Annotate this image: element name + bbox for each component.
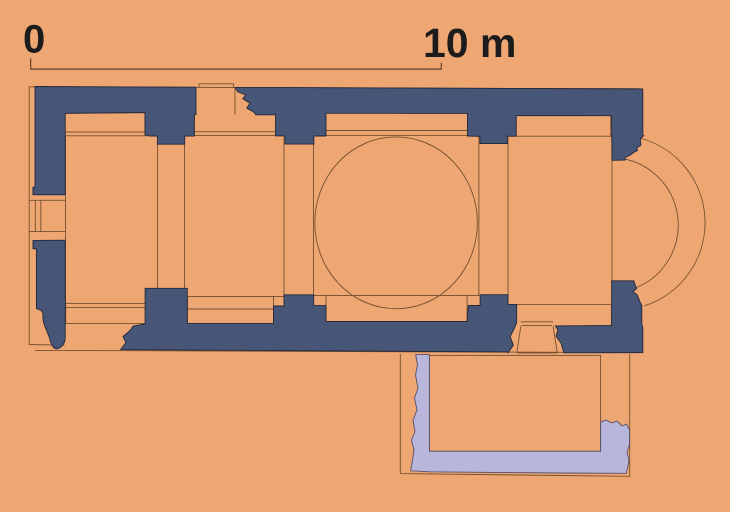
svg-text:0: 0 — [23, 18, 45, 62]
svg-text:10 m: 10 m — [423, 20, 516, 66]
